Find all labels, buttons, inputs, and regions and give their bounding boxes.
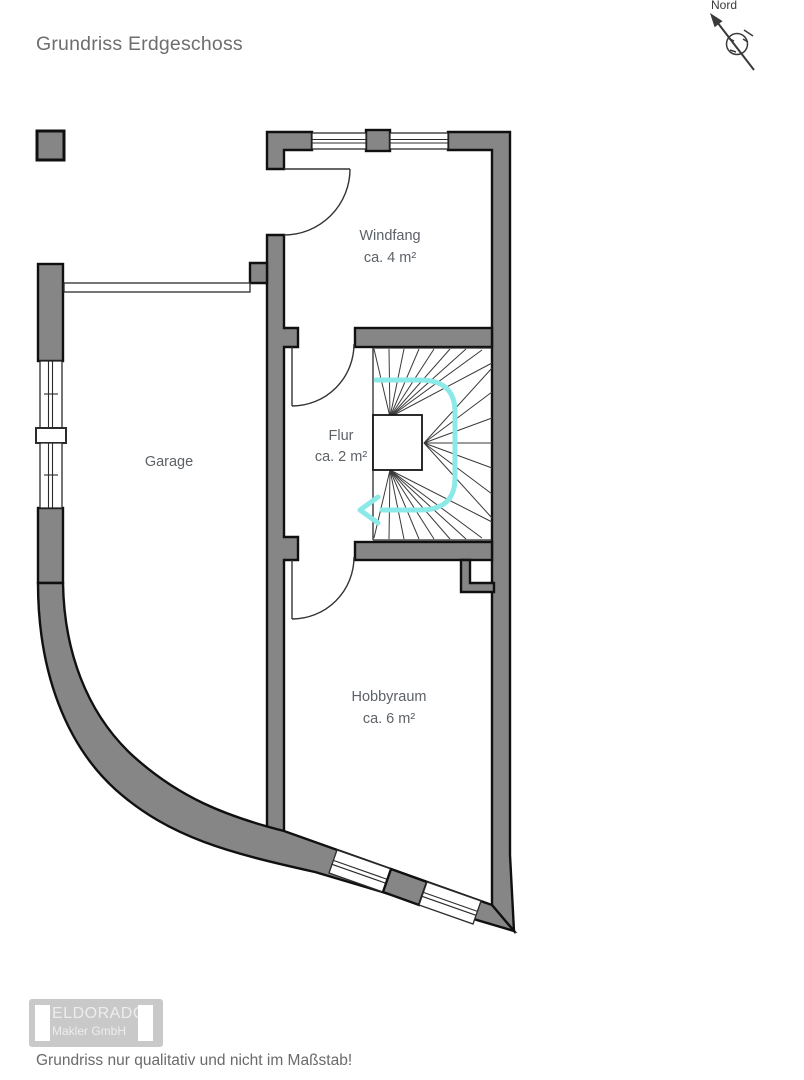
disclaimer-note: Grundriss nur qualitativ und nicht im Ma… — [36, 1052, 352, 1070]
compass-icon — [710, 13, 754, 70]
stair-treads-right — [424, 368, 492, 518]
window-garage-upper — [40, 361, 62, 428]
room-area-windfang: ca. 4 m² — [364, 250, 417, 266]
logo-left-bar — [35, 1005, 50, 1041]
floor-plan: Windfang ca. 4 m² Garage Flur ca. 2 m² H… — [0, 0, 804, 1080]
room-label-windfang: Windfang — [359, 228, 420, 244]
window-garage-lower — [40, 443, 62, 508]
entry-door — [284, 169, 350, 235]
room-area-hobbyraum: ca. 6 m² — [363, 711, 416, 727]
garage-door — [64, 283, 250, 292]
pillar — [37, 131, 64, 160]
hobbyraum-door — [292, 557, 354, 619]
logo-company-type: Makler GmbH — [52, 1024, 140, 1039]
room-labels: Windfang ca. 4 m² Garage Flur ca. 2 m² H… — [145, 228, 427, 727]
window-top-right — [390, 133, 448, 149]
stair-landing — [373, 415, 422, 470]
logo-company-name: ELDORADO — [52, 1004, 140, 1024]
logo-right-bar — [138, 1005, 153, 1041]
stairs — [360, 348, 492, 540]
flur-door — [292, 344, 354, 406]
window-sill — [36, 428, 66, 443]
window-hobby-right — [419, 882, 481, 924]
niche-wall — [461, 560, 494, 592]
room-area-flur: ca. 2 m² — [315, 449, 368, 465]
floorplan-page: Grundriss Erdgeschoss Nord — [0, 0, 804, 1080]
room-label-flur: Flur — [329, 428, 354, 444]
window-top-left — [312, 133, 366, 149]
room-label-hobbyraum: Hobbyraum — [352, 689, 427, 705]
room-label-garage: Garage — [145, 454, 193, 470]
company-logo: ELDORADO Makler GmbH — [29, 999, 163, 1047]
